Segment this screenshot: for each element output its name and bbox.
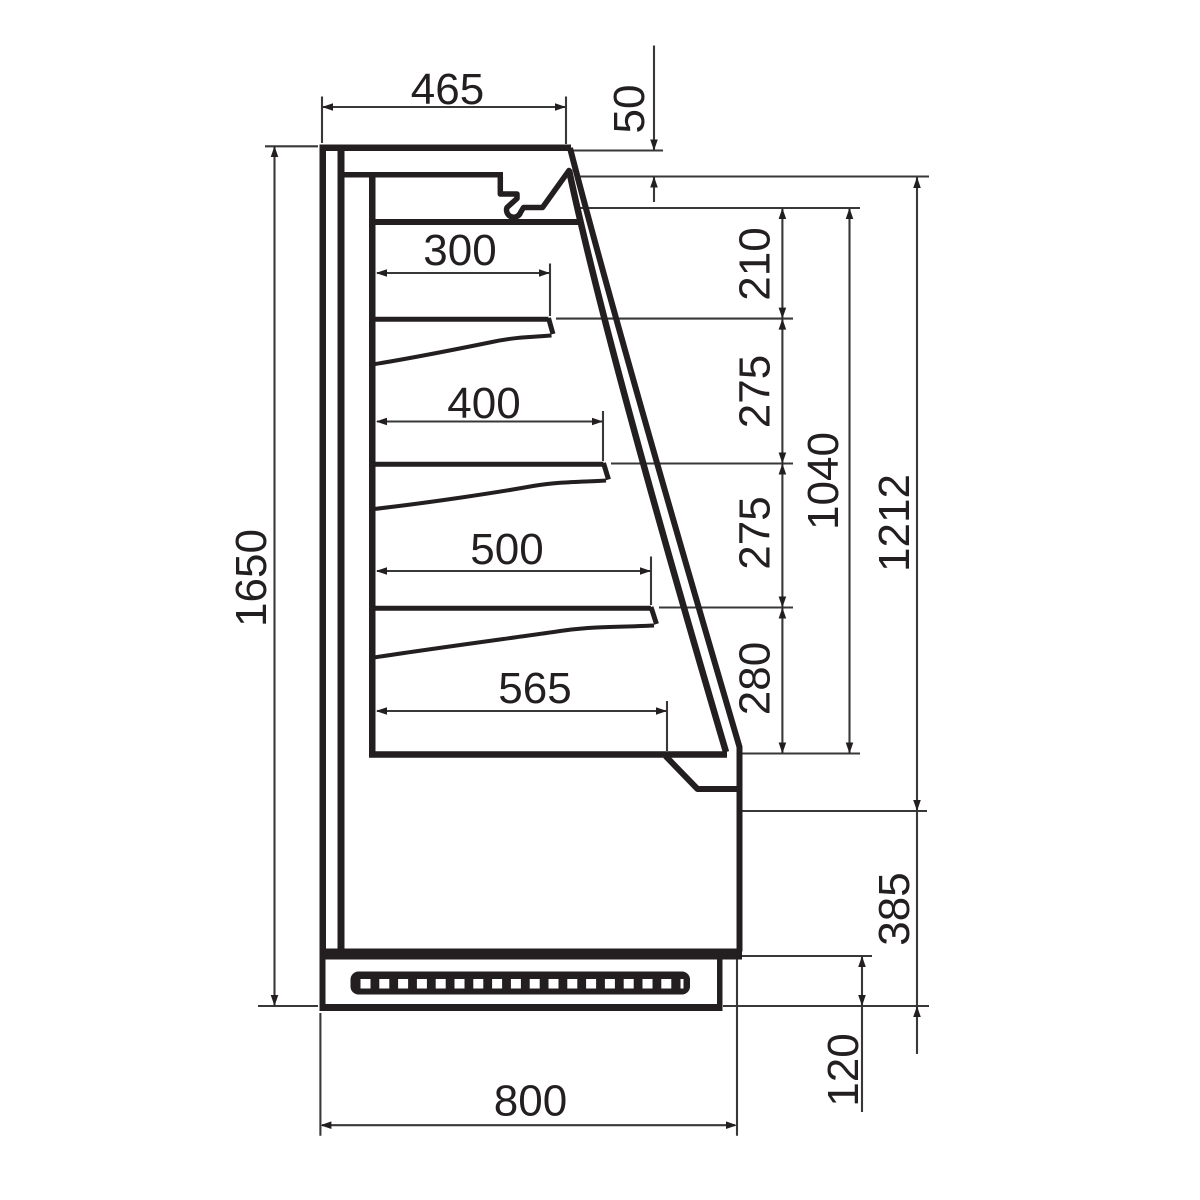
svg-text:465: 465 [411,65,484,114]
svg-text:1040: 1040 [799,432,848,530]
svg-text:300: 300 [423,226,496,275]
svg-text:1212: 1212 [870,474,919,572]
svg-text:120: 120 [819,1033,868,1106]
svg-text:500: 500 [470,525,543,574]
svg-text:210: 210 [731,227,780,300]
svg-text:280: 280 [731,642,780,715]
svg-text:275: 275 [731,355,780,428]
svg-text:385: 385 [870,872,919,945]
svg-text:565: 565 [498,664,571,713]
svg-text:275: 275 [731,496,780,569]
svg-text:50: 50 [605,85,654,134]
svg-text:400: 400 [447,379,520,428]
svg-text:800: 800 [494,1077,567,1126]
svg-text:1650: 1650 [227,529,276,627]
